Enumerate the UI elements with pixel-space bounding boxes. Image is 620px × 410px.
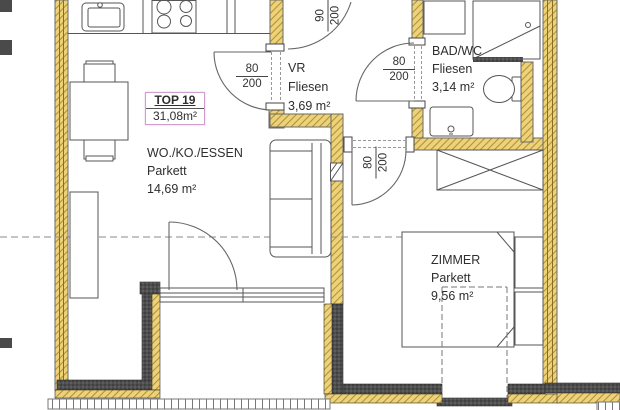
room-floor: Fliesen xyxy=(288,78,330,97)
kitchen-counter xyxy=(68,0,270,34)
wall-column-icon xyxy=(331,163,344,181)
kitchen-sink-icon xyxy=(82,3,124,31)
room-name: WO./KO./ESSEN xyxy=(147,144,243,162)
room-label-living: WO./KO./ESSEN Parkett 14,69 m² xyxy=(147,144,243,198)
unit-total-area: 31,08m² xyxy=(146,109,204,124)
door-dim-living-vr: 80 200 xyxy=(236,63,268,90)
room-area: 3,69 m² xyxy=(288,97,330,116)
washbasin-icon xyxy=(430,107,473,136)
room-name: VR xyxy=(288,59,330,78)
sofa-icon xyxy=(270,140,331,257)
room-name: BAD/WC xyxy=(432,42,482,60)
room-area: 14,69 m² xyxy=(147,180,243,198)
wardrobe-icon xyxy=(437,150,543,190)
room-name: ZIMMER xyxy=(431,251,480,269)
living-terrace-door xyxy=(169,222,237,290)
washing-machine-icon xyxy=(424,1,465,34)
neighbor-wall-fragments xyxy=(0,0,12,348)
door-dim-vr-bath: 80 200 xyxy=(383,56,415,83)
bottom-walls xyxy=(325,383,620,406)
living-window-band xyxy=(160,288,324,302)
door-dim-entrance: 90 200 xyxy=(315,0,342,32)
room-label-bath: BAD/WC Fliesen 3,14 m² xyxy=(432,42,482,96)
sideboard-icon xyxy=(70,192,98,298)
room-area: 9,56 m² xyxy=(431,287,480,305)
kitchen-stove-icon xyxy=(152,0,196,33)
unit-id: TOP 19 xyxy=(146,93,204,109)
floor-plan: TOP 19 31,08m² WO./KO./ESSEN Parkett 14,… xyxy=(0,0,620,410)
room-area: 3,14 m² xyxy=(432,78,482,96)
room-label-vestibule: VR Fliesen 3,69 m² xyxy=(288,59,330,116)
room-floor: Parkett xyxy=(147,162,243,180)
room-floor: Fliesen xyxy=(432,60,482,78)
unit-title-box: TOP 19 31,08m² xyxy=(145,92,205,125)
door-dim-vr-bedroom: 80 200 xyxy=(363,147,390,179)
shower-icon xyxy=(473,1,540,62)
room-floor: Parkett xyxy=(431,269,480,287)
dining-table-icon xyxy=(70,61,128,161)
room-label-bedroom: ZIMMER Parkett 9,56 m² xyxy=(431,251,480,305)
toilet-icon xyxy=(484,76,522,103)
